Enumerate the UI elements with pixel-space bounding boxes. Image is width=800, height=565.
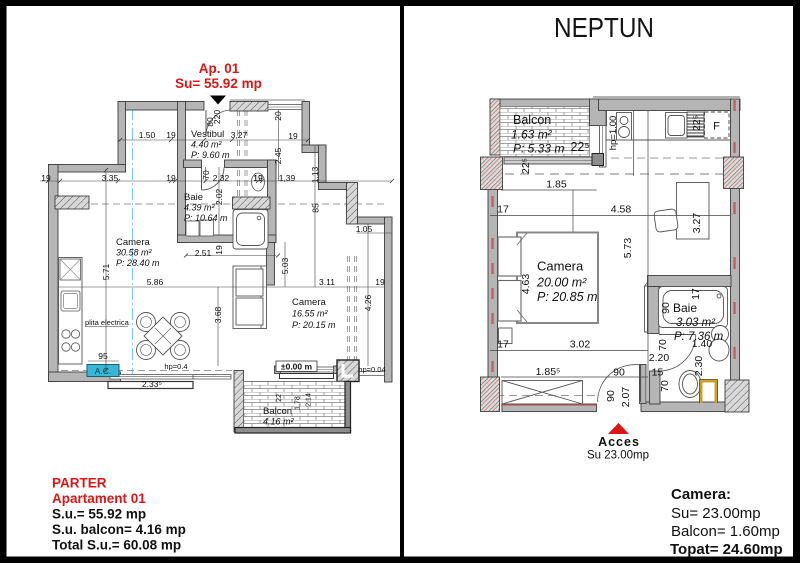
svg-text:P: 28.40 m: P: 28.40 m bbox=[116, 258, 160, 268]
svg-text:1.05: 1.05 bbox=[356, 224, 373, 234]
svg-text:1,39: 1,39 bbox=[279, 173, 296, 183]
svg-text:±0.00 m: ±0.00 m bbox=[281, 362, 313, 372]
svg-text:1.85: 1.85 bbox=[546, 179, 567, 191]
svg-text:1.50: 1.50 bbox=[139, 130, 156, 140]
svg-text:P: 20.15 m: P: 20.15 m bbox=[292, 320, 336, 330]
svg-text:Ap. 01: Ap. 01 bbox=[199, 61, 240, 76]
svg-text:19: 19 bbox=[375, 277, 385, 287]
svg-text:70: 70 bbox=[657, 339, 669, 351]
svg-text:90: 90 bbox=[660, 302, 672, 314]
svg-text:3.02: 3.02 bbox=[570, 339, 591, 351]
svg-text:P: 10.64 m: P: 10.64 m bbox=[184, 213, 228, 223]
svg-text:22⁵: 22⁵ bbox=[570, 140, 589, 154]
svg-text:70: 70 bbox=[201, 170, 211, 180]
svg-text:2,32: 2,32 bbox=[213, 173, 230, 183]
svg-text:3.27: 3.27 bbox=[691, 213, 703, 234]
svg-text:19: 19 bbox=[166, 130, 176, 140]
svg-text:Su= 55.92 mp: Su= 55.92 mp bbox=[175, 76, 262, 91]
svg-text:3.35: 3.35 bbox=[102, 173, 119, 183]
svg-text:19: 19 bbox=[41, 173, 51, 183]
svg-text:17: 17 bbox=[497, 339, 509, 351]
svg-text:3.11: 3.11 bbox=[319, 277, 335, 287]
svg-text:hp=0.04: hp=0.04 bbox=[358, 365, 385, 374]
svg-text:Balcon: Balcon bbox=[513, 113, 551, 127]
svg-text:4.63: 4.63 bbox=[520, 274, 532, 295]
svg-text:Su= 23.00mp: Su= 23.00mp bbox=[671, 505, 761, 522]
svg-text:5.86: 5.86 bbox=[147, 277, 164, 287]
svg-text:4.39 m²: 4.39 m² bbox=[184, 203, 216, 213]
svg-text:Su 23.00mp: Su 23.00mp bbox=[587, 450, 649, 462]
svg-text:Camera:: Camera: bbox=[671, 486, 731, 503]
svg-text:2.45: 2.45 bbox=[273, 147, 283, 164]
svg-text:P: 7.36 m: P: 7.36 m bbox=[674, 331, 724, 343]
svg-text:17: 17 bbox=[497, 204, 509, 216]
svg-text:17: 17 bbox=[690, 288, 702, 300]
svg-text:S.u. balcon= 4.16 mp: S.u. balcon= 4.16 mp bbox=[52, 522, 186, 537]
svg-text:30.58 m²: 30.58 m² bbox=[116, 248, 153, 258]
svg-text:1.63 m²: 1.63 m² bbox=[511, 128, 553, 142]
svg-text:1.85⁵: 1.85⁵ bbox=[536, 366, 561, 378]
svg-text:Apartament 01: Apartament 01 bbox=[52, 491, 146, 506]
svg-text:hp=1.00: hp=1.00 bbox=[608, 116, 619, 151]
svg-text:22: 22 bbox=[276, 394, 283, 402]
svg-text:Baie: Baie bbox=[184, 192, 203, 203]
svg-text:Balcon= 1.60mp: Balcon= 1.60mp bbox=[671, 523, 780, 540]
svg-text:19: 19 bbox=[214, 245, 224, 255]
svg-text:2.33⁵: 2.33⁵ bbox=[142, 379, 162, 389]
svg-text:5.71: 5.71 bbox=[101, 263, 111, 280]
svg-text:19: 19 bbox=[288, 131, 298, 141]
svg-text:2.51: 2.51 bbox=[195, 248, 212, 258]
svg-text:Camera: Camera bbox=[292, 297, 327, 308]
svg-text:2.14: 2.14 bbox=[306, 393, 313, 407]
svg-text:plita electrica: plita electrica bbox=[85, 318, 130, 327]
svg-text:20.00 m²: 20.00 m² bbox=[536, 276, 587, 290]
svg-text:3.68: 3.68 bbox=[213, 306, 223, 323]
svg-text:85: 85 bbox=[311, 203, 321, 213]
svg-text:95: 95 bbox=[98, 351, 108, 361]
svg-text:2.30: 2.30 bbox=[693, 356, 705, 377]
svg-text:A.C.: A.C. bbox=[95, 366, 112, 376]
svg-text:5.73: 5.73 bbox=[622, 238, 634, 259]
svg-text:4.58: 4.58 bbox=[611, 204, 632, 216]
svg-text:hp=0.4: hp=0.4 bbox=[164, 362, 187, 371]
svg-text:4.40 m²: 4.40 m² bbox=[191, 140, 223, 150]
svg-text:P: 20.85 m: P: 20.85 m bbox=[537, 290, 597, 304]
svg-text:20: 20 bbox=[273, 111, 283, 121]
svg-text:3.03 m²: 3.03 m² bbox=[676, 317, 716, 329]
svg-text:2.20: 2.20 bbox=[649, 352, 670, 364]
svg-text:5.03: 5.03 bbox=[280, 257, 290, 274]
svg-text:4.16 m²: 4.16 m² bbox=[263, 417, 295, 427]
svg-text:Acces: Acces bbox=[598, 435, 640, 449]
svg-text:F: F bbox=[713, 121, 720, 133]
svg-text:22⁵: 22⁵ bbox=[691, 115, 703, 131]
svg-text:Topat= 24.60mp: Topat= 24.60mp bbox=[670, 541, 783, 558]
svg-text:220: 220 bbox=[212, 110, 222, 124]
svg-text:Baie: Baie bbox=[673, 301, 697, 315]
svg-text:2.07: 2.07 bbox=[620, 387, 632, 408]
svg-text:NEPTUN: NEPTUN bbox=[554, 12, 654, 43]
svg-text:Vestibul: Vestibul bbox=[191, 129, 224, 140]
svg-text:PARTER: PARTER bbox=[52, 476, 107, 491]
svg-text:16.55 m²: 16.55 m² bbox=[292, 309, 329, 319]
svg-text:70: 70 bbox=[659, 380, 671, 392]
svg-text:90: 90 bbox=[605, 390, 617, 402]
svg-text:15: 15 bbox=[652, 367, 664, 379]
svg-text:Balcon: Balcon bbox=[263, 406, 292, 417]
svg-text:90: 90 bbox=[613, 367, 625, 379]
svg-text:1.13: 1.13 bbox=[310, 166, 320, 183]
svg-text:S.u.= 55.92 mp: S.u.= 55.92 mp bbox=[52, 507, 146, 522]
svg-text:1.78: 1.78 bbox=[295, 396, 302, 410]
svg-text:2.02: 2.02 bbox=[214, 188, 224, 205]
svg-text:Camera: Camera bbox=[537, 259, 584, 274]
svg-text:P: 9.60 m: P: 9.60 m bbox=[191, 150, 230, 160]
svg-text:P: 5.33 m: P: 5.33 m bbox=[513, 142, 564, 156]
svg-text:22⁵: 22⁵ bbox=[520, 158, 532, 174]
svg-text:Camera: Camera bbox=[116, 237, 151, 248]
svg-text:4.26: 4.26 bbox=[363, 294, 373, 311]
svg-text:Total S.u.= 60.08 mp: Total S.u.= 60.08 mp bbox=[52, 538, 181, 553]
